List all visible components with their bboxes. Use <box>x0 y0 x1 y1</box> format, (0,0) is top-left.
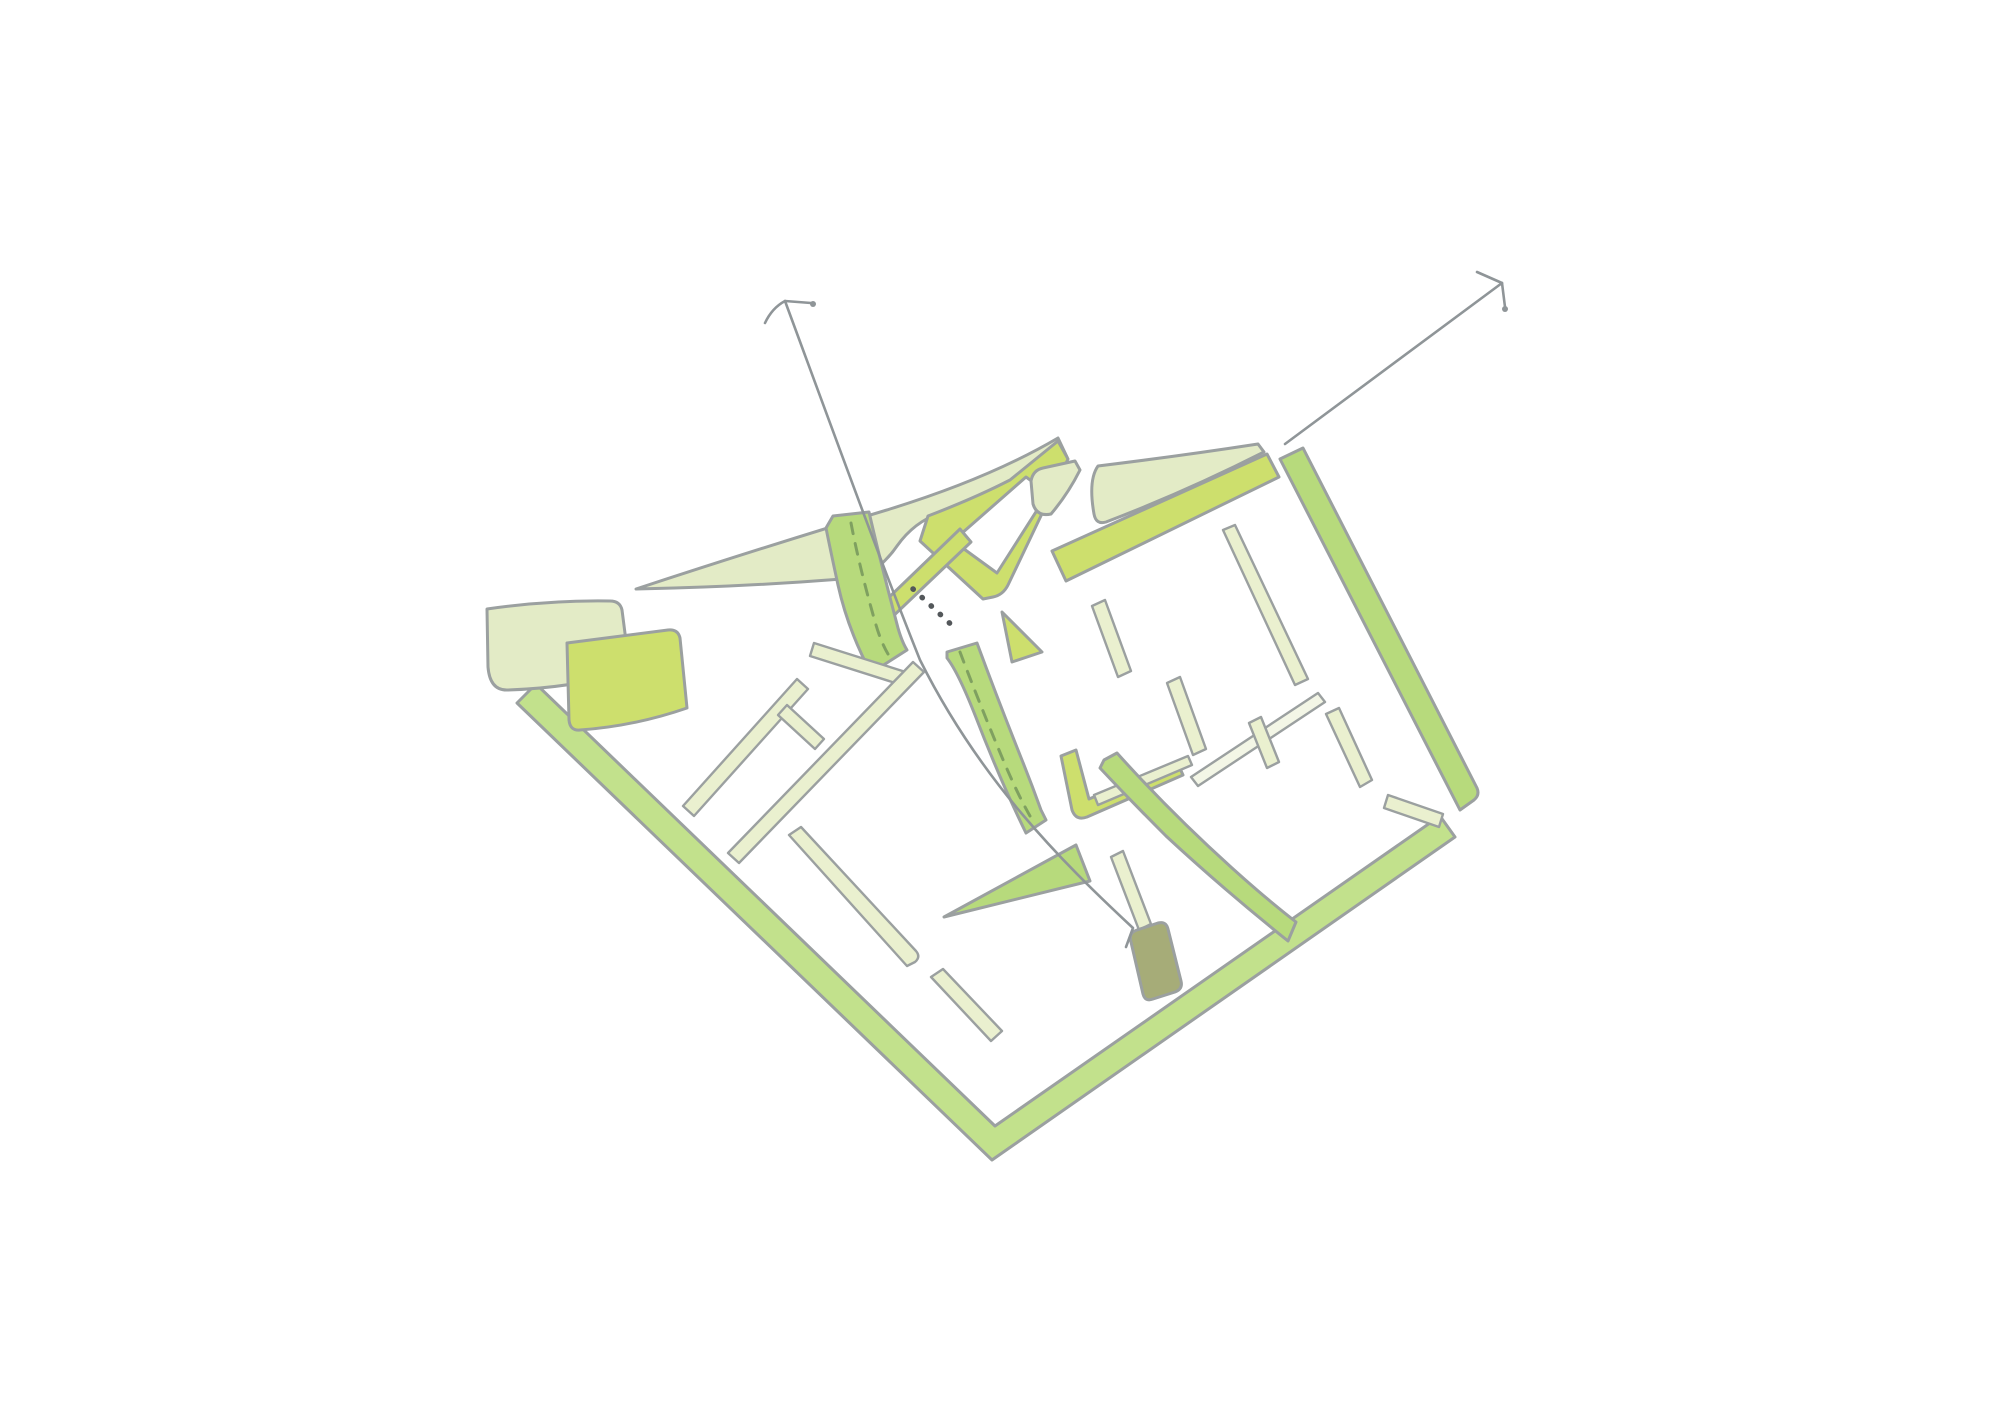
wall-strip-east-5 <box>1326 708 1372 787</box>
canvas: { "page": { "kind": "hand-drawn architec… <box>0 0 2000 1414</box>
chartreuse-slice-at-crossing <box>1002 612 1042 662</box>
wall-strip-west-1-stub <box>778 705 824 749</box>
wall-strip-west-4 <box>931 969 1002 1041</box>
arrow-northwest-head-dot <box>810 301 816 307</box>
wall-strip-west-2 <box>728 662 924 863</box>
tapering-canal-wedge <box>947 643 1046 833</box>
site-plan-sketch <box>0 0 2000 1414</box>
wall-strip-east-8 <box>1111 851 1151 930</box>
arrow-northeast-head-dot <box>1502 306 1508 312</box>
wall-strip-east-2 <box>1167 677 1206 755</box>
arrow-northeast <box>1285 272 1508 444</box>
chartreuse-quad-left <box>567 630 687 730</box>
site-boundary-right <box>1280 448 1478 810</box>
notch-pale-piece <box>1031 461 1080 515</box>
site-boundary-bottom <box>517 684 1455 1160</box>
arrow-northwest-shaft <box>785 301 1133 947</box>
green-triangle <box>944 845 1090 917</box>
arrow-northeast-shaft <box>1285 283 1502 444</box>
wall-strip-east-1 <box>1092 600 1131 677</box>
building-marker <box>1130 923 1181 1000</box>
dotted-desire-line <box>913 589 957 630</box>
wall-strip-east-6 <box>1384 795 1443 827</box>
wall-strip-east-3 <box>1223 525 1308 685</box>
arrow-northeast-head <box>1477 272 1505 307</box>
